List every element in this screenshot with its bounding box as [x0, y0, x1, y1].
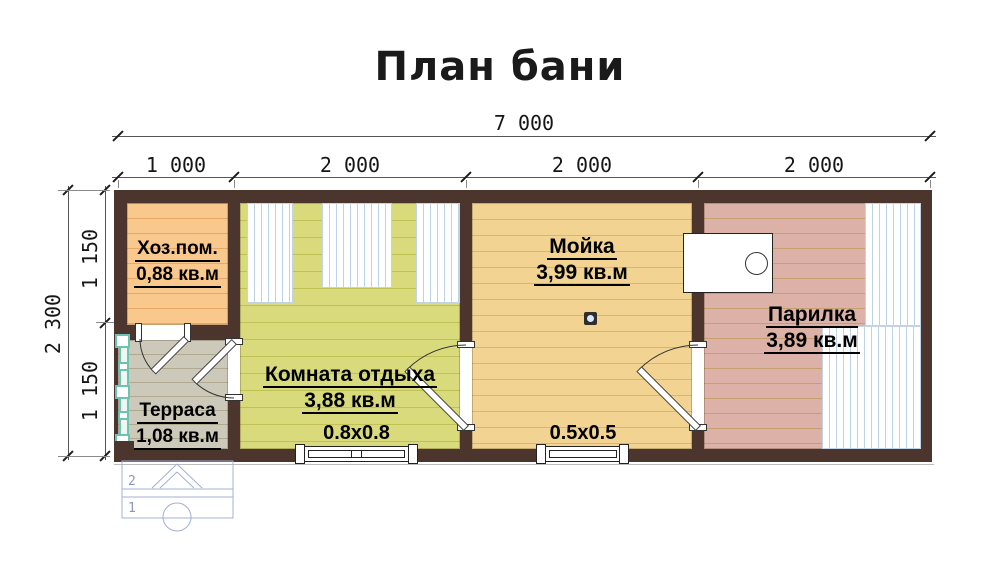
witness-line [58, 190, 110, 191]
window-size-label-2: 0.5x0.5 [541, 422, 625, 445]
door-jamb [135, 323, 142, 342]
dim-top-segments-line [112, 177, 936, 178]
door-jamb [689, 424, 707, 431]
window-jamb [536, 444, 546, 464]
bench [416, 203, 460, 303]
door-jamb [184, 323, 191, 342]
room-area: 3,89 кв.м [764, 330, 860, 354]
dim-left-total-line [68, 186, 69, 460]
room-terrasa-label: Терраса 1,08 кв.м [120, 398, 235, 450]
door-jamb [457, 424, 475, 431]
window-mullion [351, 450, 362, 458]
dim-left-seg-label-1: 1 150 [78, 219, 102, 299]
room-area: 1,08 кв.м [134, 426, 221, 450]
floor-plan-page: План бани 7 000 1 000 2 000 2 000 2 000 … [0, 0, 1000, 583]
window-jamb [408, 444, 418, 464]
room-hozpom-label: Хоз.пом. 0,88 кв.м [120, 236, 235, 288]
witness-line [930, 180, 931, 188]
entrance-steps [122, 461, 233, 531]
dim-seg-label-4: 2 000 [698, 153, 930, 177]
dim-left-seg-label-2: 1 150 [78, 351, 102, 431]
dim-left-total-label: 2 300 [41, 279, 65, 369]
window-glass [549, 450, 617, 458]
floor-drain-hole [587, 315, 594, 322]
room-name: Хоз.пом. [135, 238, 220, 262]
room-parilka-label: Парилка 3,89 кв.м [702, 302, 922, 354]
door-opening [140, 325, 186, 340]
room-area: 0,88 кв.м [134, 264, 221, 288]
bench [322, 203, 392, 288]
witness-line [234, 180, 235, 188]
room-name: Комната отдыха [263, 364, 437, 388]
page-title: План бани [0, 44, 1000, 90]
room-name: Терраса [137, 400, 217, 424]
dim-seg-label-3: 2 000 [466, 153, 698, 177]
door-jamb [457, 341, 475, 348]
step-number-2: 2 [128, 474, 136, 489]
window-jamb [619, 444, 629, 464]
room-area: 3,88 кв.м [302, 390, 398, 414]
door-jamb [225, 338, 243, 345]
witness-line [698, 180, 699, 188]
railing-post [115, 385, 130, 399]
witness-line [58, 456, 110, 457]
dim-top-total-label: 7 000 [424, 111, 624, 135]
bench [247, 203, 293, 303]
room-name: Парилка [766, 304, 858, 328]
window-jamb [295, 444, 305, 464]
room-moyka-label: Мойка 3,99 кв.м [472, 234, 692, 286]
railing-post [115, 334, 130, 348]
dim-seg-label-1: 1 000 [118, 153, 234, 177]
roof-outline [114, 464, 934, 465]
door-opening [692, 345, 704, 428]
witness-line [466, 180, 467, 188]
railing-rung [118, 362, 129, 371]
dim-top-total-line [112, 136, 936, 137]
witness-line [118, 180, 119, 188]
window-size-label-1: 0.8x0.8 [300, 422, 413, 445]
room-komnata-label: Комната отдыха 3,88 кв.м [238, 362, 462, 414]
room-area: 3,99 кв.м [534, 262, 630, 286]
dim-seg-label-2: 2 000 [234, 153, 466, 177]
step-number-1: 1 [128, 501, 136, 516]
stove-circle-icon [745, 252, 768, 275]
witness-line [96, 322, 114, 323]
room-name: Мойка [547, 236, 616, 260]
